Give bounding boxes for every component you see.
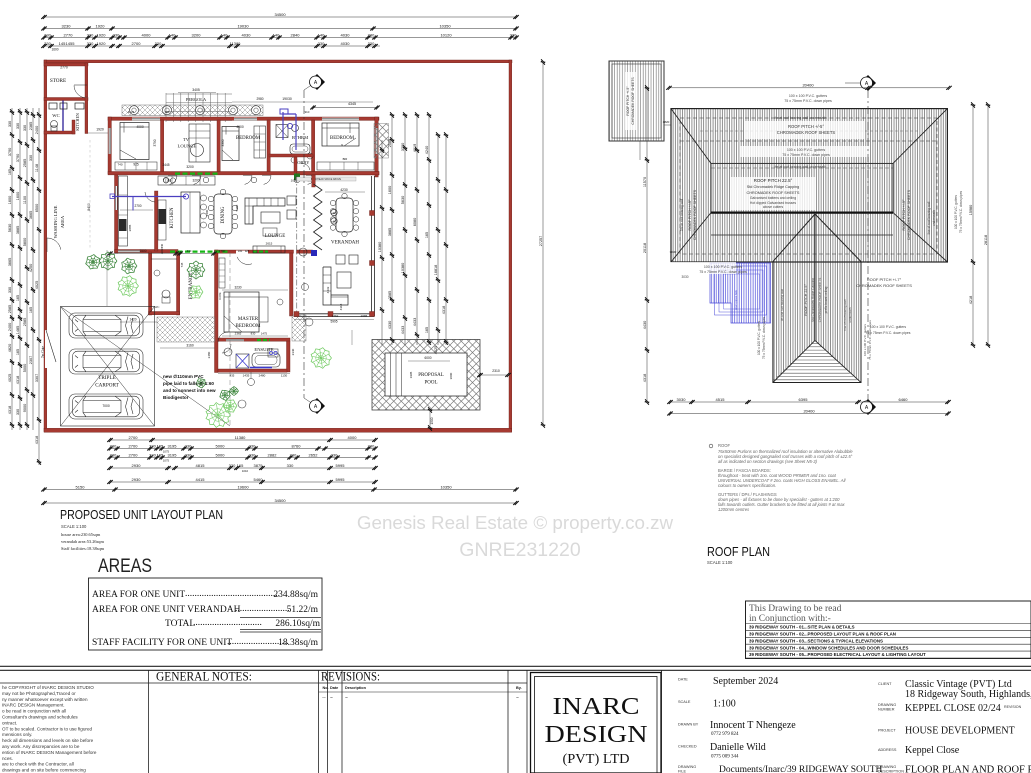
svg-text:4025: 4025 xyxy=(8,374,12,382)
svg-text:100 x 100 P.V.C. gutters: 100 x 100 P.V.C. gutters xyxy=(863,323,867,356)
svg-text:Galvanised battens and ceiling: Galvanised battens and ceiling xyxy=(750,196,796,200)
svg-text:4318: 4318 xyxy=(442,306,446,314)
svg-text:he COPYRIGHT of INARC DESIGN S: he COPYRIGHT of INARC DESIGN STUDIO xyxy=(2,685,94,690)
svg-text:1200mm centres: 1200mm centres xyxy=(718,507,750,512)
svg-text:4025: 4025 xyxy=(35,281,39,289)
svg-text:3885: 3885 xyxy=(16,226,20,234)
svg-text:3790: 3790 xyxy=(153,139,157,146)
svg-text:140: 140 xyxy=(221,32,228,37)
svg-text:1790: 1790 xyxy=(219,249,226,253)
svg-text:CHROMADEK ROOF SHEETS: CHROMADEK ROOF SHEETS xyxy=(856,283,912,288)
svg-text:4030: 4030 xyxy=(341,32,351,37)
svg-text:Std Chromadek Ridge Capping: Std Chromadek Ridge Capping xyxy=(811,278,815,322)
svg-text:19030: 19030 xyxy=(237,23,249,28)
svg-text:CHECKED: CHECKED xyxy=(678,745,697,749)
svg-text:2770: 2770 xyxy=(64,32,74,37)
svg-text:PERGOLA: PERGOLA xyxy=(186,97,207,102)
svg-text:AREAS: AREAS xyxy=(98,556,152,577)
svg-text:330: 330 xyxy=(368,443,375,448)
svg-text:330: 330 xyxy=(44,32,51,37)
svg-text:1920: 1920 xyxy=(96,128,104,132)
svg-text:4240: 4240 xyxy=(425,146,429,154)
svg-text:3875: 3875 xyxy=(254,463,264,468)
svg-text:4318: 4318 xyxy=(8,406,12,414)
svg-text:CARPORT: CARPORT xyxy=(95,383,119,389)
svg-text:Danielle Wild: Danielle Wild xyxy=(710,742,766,753)
svg-text:Innocent T Nhengeze: Innocent T Nhengeze xyxy=(710,720,796,731)
svg-text:75 x 75mm P.V.C. down pipes: 75 x 75mm P.V.C. down pipes xyxy=(868,320,872,360)
svg-text:3195: 3195 xyxy=(168,452,178,457)
svg-text:3000: 3000 xyxy=(449,372,453,379)
svg-text:3030: 3030 xyxy=(677,397,687,402)
svg-text:3200: 3200 xyxy=(186,165,194,169)
svg-text:330: 330 xyxy=(16,409,20,415)
svg-text:330: 330 xyxy=(16,123,20,129)
svg-text:4319: 4319 xyxy=(413,144,417,152)
svg-text:This Drawing to be read: This Drawing to be read xyxy=(749,604,842,614)
svg-text:..............................: ........................................ xyxy=(185,589,280,599)
svg-text:1475: 1475 xyxy=(261,332,268,336)
svg-text:100 x 100 P.V.C. gutters: 100 x 100 P.V.C. gutters xyxy=(757,321,761,355)
svg-text:1485: 1485 xyxy=(16,326,20,334)
svg-text:330: 330 xyxy=(287,463,294,468)
svg-text:4433: 4433 xyxy=(401,326,405,334)
svg-text:330: 330 xyxy=(8,121,12,127)
svg-text:2500: 2500 xyxy=(139,249,146,253)
svg-text:CHROMADEK ROOF SHEETS: CHROMADEK ROOF SHEETS xyxy=(907,189,911,240)
svg-text:6500: 6500 xyxy=(35,204,39,212)
svg-text:INARC DESIGN Management.: INARC DESIGN Management. xyxy=(2,703,65,708)
svg-text:3230: 3230 xyxy=(234,286,241,290)
svg-text:may not be Photographed,Traced: may not be Photographed,Traced or xyxy=(2,691,76,696)
svg-text:19030: 19030 xyxy=(282,97,292,101)
svg-text:10350: 10350 xyxy=(439,23,451,28)
svg-text:1100: 1100 xyxy=(23,196,27,204)
svg-text:39 RIDGEWAY SOUTH - 04...WINDO: 39 RIDGEWAY SOUTH - 04...WINDOW SCHEDULE… xyxy=(749,645,908,650)
svg-text:330: 330 xyxy=(113,32,120,37)
svg-text:KITCHEN: KITCHEN xyxy=(170,207,175,229)
svg-text:2885: 2885 xyxy=(128,224,132,231)
svg-text:0775 009 344: 0775 009 344 xyxy=(711,755,739,760)
svg-text:2700: 2700 xyxy=(129,435,139,440)
svg-text:140: 140 xyxy=(169,32,176,37)
svg-text:underneath: underneath xyxy=(932,210,936,226)
svg-text:140: 140 xyxy=(318,32,325,37)
svg-text:8400: 8400 xyxy=(87,203,91,211)
svg-text:ROOF PITCH +/-5°: ROOF PITCH +/-5° xyxy=(626,86,630,116)
svg-text:2615: 2615 xyxy=(266,242,273,246)
svg-text:4515: 4515 xyxy=(716,397,726,402)
svg-text:75 x 75mm P.V.C. down pipes: 75 x 75mm P.V.C. down pipes xyxy=(699,270,747,274)
svg-text:7m Gate: 7m Gate xyxy=(41,345,45,358)
svg-text:4318: 4318 xyxy=(16,376,20,384)
svg-text:28118: 28118 xyxy=(984,235,988,245)
svg-text:CHROMADEK ROOF SHEETS: CHROMADEK ROOF SHEETS xyxy=(631,77,635,125)
svg-text:51.22/m: 51.22/m xyxy=(287,605,319,615)
svg-text:8760: 8760 xyxy=(292,443,302,448)
svg-text:2585: 2585 xyxy=(23,318,27,326)
svg-text:2585: 2585 xyxy=(23,159,27,167)
svg-text:FILE: FILE xyxy=(678,770,686,773)
svg-text:3390: 3390 xyxy=(221,139,225,146)
svg-text:REVISIONS:: REVISIONS: xyxy=(321,670,380,684)
svg-text:2882: 2882 xyxy=(268,452,278,457)
svg-text:TOTAL: TOTAL xyxy=(165,619,195,629)
svg-text:5995: 5995 xyxy=(336,463,346,468)
svg-text:9000: 9000 xyxy=(23,404,27,412)
svg-text:6395: 6395 xyxy=(799,397,809,402)
svg-text:330: 330 xyxy=(368,32,375,37)
svg-text:4030: 4030 xyxy=(341,41,351,46)
svg-text:DN at roof bearing wall: DN at roof bearing wall xyxy=(680,198,684,231)
svg-text:3230: 3230 xyxy=(62,23,72,28)
svg-text:2700: 2700 xyxy=(132,41,142,46)
svg-text:330: 330 xyxy=(187,249,192,253)
svg-text:house area:230.65sqm: house area:230.65sqm xyxy=(61,532,101,537)
svg-text:.............................: ............................. xyxy=(193,618,262,628)
svg-text:DESIGN: DESIGN xyxy=(545,722,648,748)
svg-text:5460: 5460 xyxy=(254,477,264,482)
svg-text:3665: 3665 xyxy=(8,258,12,266)
svg-text:1920: 1920 xyxy=(97,32,107,37)
svg-text:4318: 4318 xyxy=(339,303,343,310)
svg-text:20400: 20400 xyxy=(802,83,814,88)
svg-text:GNRE231220: GNRE231220 xyxy=(459,539,581,561)
svg-text:1600: 1600 xyxy=(388,186,392,194)
svg-text:4000: 4000 xyxy=(142,32,152,37)
svg-text:11380: 11380 xyxy=(235,435,247,440)
svg-text:..........................: .......................... xyxy=(227,637,289,647)
svg-text:5995: 5995 xyxy=(336,477,346,482)
svg-text:ROOF PITCH 22.5°: ROOF PITCH 22.5° xyxy=(754,178,793,183)
svg-text:PROPOSAL: PROPOSAL xyxy=(418,373,444,378)
svg-text:1435: 1435 xyxy=(243,374,250,378)
svg-text:verandah area:53.26sqm: verandah area:53.26sqm xyxy=(61,539,104,544)
svg-text:3790: 3790 xyxy=(16,154,20,162)
svg-text:Description: Description xyxy=(345,686,367,690)
svg-text:5000: 5000 xyxy=(216,452,226,457)
svg-text:234.88sq/m: 234.88sq/m xyxy=(273,590,318,600)
svg-text:6460: 6460 xyxy=(899,397,909,402)
svg-text:DESCRIPTION: DESCRIPTION xyxy=(878,770,904,773)
svg-text:new ∅110mm PVC: new ∅110mm PVC xyxy=(163,374,204,379)
svg-text:330: 330 xyxy=(229,463,236,468)
svg-text:mensions only.: mensions only. xyxy=(2,732,32,737)
svg-text:CHROMADEK ROOF SHEETS: CHROMADEK ROOF SHEETS xyxy=(747,191,800,195)
svg-text:Date: Date xyxy=(330,686,338,690)
svg-text:2980: 2980 xyxy=(256,97,263,101)
svg-text:165: 165 xyxy=(237,463,244,468)
svg-text:2700: 2700 xyxy=(134,204,141,208)
svg-text:165: 165 xyxy=(425,232,429,238)
svg-text:2480: 2480 xyxy=(259,374,266,378)
svg-text:15980: 15980 xyxy=(969,205,973,216)
svg-text:5150: 5150 xyxy=(76,484,86,489)
svg-text:140: 140 xyxy=(273,32,280,37)
svg-text:MASTER: MASTER xyxy=(238,317,259,322)
svg-text:165: 165 xyxy=(8,169,12,175)
svg-text:330: 330 xyxy=(510,32,517,37)
svg-text:7000: 7000 xyxy=(102,404,110,408)
svg-text:M: M xyxy=(333,220,335,224)
svg-text:Consultant's drawings and sche: Consultant's drawings and schedules xyxy=(2,715,78,720)
svg-text:830: 830 xyxy=(251,332,256,336)
svg-text:DRAWING: DRAWING xyxy=(878,765,896,769)
svg-text:330: 330 xyxy=(87,41,94,46)
svg-text:34500: 34500 xyxy=(274,498,286,503)
svg-text:BULKHEAD SPACE ABOVE: BULKHEAD SPACE ABOVE xyxy=(311,178,342,181)
svg-text:ontract.: ontract. xyxy=(2,720,17,725)
svg-text:in Conjunction with:-: in Conjunction with:- xyxy=(749,614,831,624)
svg-text:1010: 1010 xyxy=(242,469,249,473)
svg-text:1:100: 1:100 xyxy=(713,699,736,710)
svg-text:39 RIDGEWAY SOUTH - 03...SECTI: 39 RIDGEWAY SOUTH - 03...SECTIONS & TYPI… xyxy=(749,638,883,643)
svg-text:330: 330 xyxy=(368,41,375,46)
svg-text:PROJECT: PROJECT xyxy=(878,729,896,733)
svg-text:ROOF PLAN: ROOF PLAN xyxy=(707,544,770,559)
svg-text:AIRER: AIRER xyxy=(160,243,164,254)
svg-text:100 x 100 P.V.C. gutters: 100 x 100 P.V.C. gutters xyxy=(870,325,906,329)
svg-text:STORE: STORE xyxy=(50,78,66,84)
svg-text:3195: 3195 xyxy=(168,443,178,448)
svg-text:330: 330 xyxy=(23,125,27,131)
svg-text:11570: 11570 xyxy=(643,177,647,187)
svg-text:3400: 3400 xyxy=(205,209,209,216)
svg-text:3885: 3885 xyxy=(388,228,392,236)
svg-text:3405: 3405 xyxy=(192,88,200,92)
svg-text:0772 979 824: 0772 979 824 xyxy=(711,732,739,737)
svg-text:GENERAL NOTES:: GENERAL NOTES: xyxy=(156,670,252,684)
svg-text:3200: 3200 xyxy=(192,32,202,37)
svg-text:75 x 75mm P.V.C. down pipes: 75 x 75mm P.V.C. down pipes xyxy=(866,331,911,335)
svg-text:the at roof bearing wall under: the at roof bearing wall underneath xyxy=(774,116,827,120)
svg-text:prefix board ceiling: prefix board ceiling xyxy=(824,286,828,313)
svg-text:18 Ridgeway South, Highlands,: 18 Ridgeway South, Highlands, Harare xyxy=(905,689,1031,700)
svg-text:910: 910 xyxy=(305,110,310,114)
svg-text:165: 165 xyxy=(157,452,164,457)
svg-text:CHROMADEK ROOF SHEETS: CHROMADEK ROOF SHEETS xyxy=(777,130,836,135)
svg-text:.......................: ....................... xyxy=(235,604,290,614)
svg-text:2310: 2310 xyxy=(492,369,500,373)
svg-text:165: 165 xyxy=(16,349,20,355)
svg-text:435: 435 xyxy=(230,374,235,378)
svg-text:drawings and on site before co: drawings and on site before commencing xyxy=(2,768,86,773)
svg-text:4318: 4318 xyxy=(35,436,39,444)
svg-text:STAFF FACILITY FOR ONE UNIT: STAFF FACILITY FOR ONE UNIT xyxy=(92,638,232,648)
svg-text:TRIPLE: TRIPLE xyxy=(98,375,116,381)
svg-text:4345: 4345 xyxy=(348,102,356,106)
svg-text:5800: 5800 xyxy=(23,238,27,246)
svg-text:underneath: underneath xyxy=(848,307,852,323)
svg-text:1130: 1130 xyxy=(281,374,288,378)
svg-text:AREA: AREA xyxy=(60,215,65,228)
svg-text:2445: 2445 xyxy=(162,163,169,167)
svg-text:330: 330 xyxy=(149,443,156,448)
svg-text:CHROMADEK ROOF SHEETS: CHROMADEK ROOF SHEETS xyxy=(693,189,697,240)
svg-text:39 RIDGEWAY SOUTH - 05...PROPO: 39 RIDGEWAY SOUTH - 05...PROPOSED ELECTR… xyxy=(749,652,926,657)
svg-text:3200: 3200 xyxy=(192,179,199,183)
svg-text:1075: 1075 xyxy=(163,459,170,463)
svg-text:all as indicated on section dr: all as indicated on section drawings (se… xyxy=(718,459,818,464)
svg-text:REVISION: REVISION xyxy=(1004,705,1022,709)
svg-text:4025: 4025 xyxy=(434,346,438,354)
svg-text:down pipes falls: down pipes falls xyxy=(734,289,738,310)
svg-text:SCALE 1:100: SCALE 1:100 xyxy=(707,560,733,565)
svg-text:4433: 4433 xyxy=(413,318,417,326)
svg-text:INARC: INARC xyxy=(553,694,640,720)
svg-text:pipe laid to falls @ 1:60: pipe laid to falls @ 1:60 xyxy=(163,381,214,386)
svg-text:3160: 3160 xyxy=(186,344,194,348)
svg-text:BIR: BIR xyxy=(343,157,348,161)
svg-text:4318: 4318 xyxy=(643,374,647,382)
svg-text:2652: 2652 xyxy=(309,452,319,457)
svg-text:4820: 4820 xyxy=(8,344,12,352)
svg-text:4218: 4218 xyxy=(969,296,973,304)
svg-text:AREA FOR ONE UNIT: AREA FOR ONE UNIT xyxy=(92,590,185,600)
svg-text:DRAWN BY: DRAWN BY xyxy=(678,723,699,727)
svg-text:By.: By. xyxy=(516,686,522,690)
svg-text:Documents/Inarc/39 RIDGEWAY SO: Documents/Inarc/39 RIDGEWAY SOUTH xyxy=(719,765,883,773)
svg-text:20400: 20400 xyxy=(803,408,815,413)
svg-text:the at roof bearing wall under: the at roof bearing wall underneath xyxy=(774,165,827,169)
svg-text:WASHING LINE: WASHING LINE xyxy=(53,205,58,238)
svg-text:1600: 1600 xyxy=(16,192,20,200)
svg-text:1920: 1920 xyxy=(97,41,107,46)
svg-text:330: 330 xyxy=(155,41,162,46)
svg-text:100 x 100 P.V.C. gutters: 100 x 100 P.V.C. gutters xyxy=(787,148,826,152)
svg-text:are to check with the Contract: are to check with the Contractor, all xyxy=(2,762,74,767)
svg-text:OT to be scaled. Contractor is: OT to be scaled. Contractor is to use fi… xyxy=(2,726,92,731)
svg-text:DINING: DINING xyxy=(221,206,226,224)
svg-text:2585: 2585 xyxy=(388,291,392,299)
svg-text:3790: 3790 xyxy=(401,143,405,151)
svg-text:HOUSE DEVELOPMENT: HOUSE DEVELOPMENT xyxy=(905,726,1015,737)
svg-text:KITCHEN: KITCHEN xyxy=(75,113,80,131)
svg-text:4000: 4000 xyxy=(236,125,244,129)
svg-text:1600: 1600 xyxy=(8,196,12,204)
svg-text:2585: 2585 xyxy=(388,139,392,147)
svg-text:1600: 1600 xyxy=(51,48,58,52)
svg-text:line of roof bearing wall: line of roof bearing wall xyxy=(927,201,931,234)
svg-text:FLOOR PLAN AND ROOF PLAN: FLOOR PLAN AND ROOF PLAN xyxy=(905,765,1031,773)
svg-text:SCALE 1:100: SCALE 1:100 xyxy=(61,524,87,529)
svg-text:1148: 1148 xyxy=(35,164,39,172)
svg-text:6000: 6000 xyxy=(424,356,431,360)
svg-text:and to connect into new: and to connect into new xyxy=(163,388,216,393)
svg-text:2400: 2400 xyxy=(35,126,39,134)
svg-text:Std Chromadek Ridge Capping: Std Chromadek Ridge Capping xyxy=(747,185,800,189)
svg-text:nces.: nces. xyxy=(2,756,13,761)
svg-text:75 x 75mm P.V.C. down pipes: 75 x 75mm P.V.C. down pipes xyxy=(959,191,963,234)
svg-text:2307: 2307 xyxy=(29,356,33,364)
svg-text:3030: 3030 xyxy=(670,250,677,254)
svg-text:Staff facilities:18.38sqm: Staff facilities:18.38sqm xyxy=(61,546,105,551)
svg-text:colours to owners specificatio: colours to owners specification. xyxy=(718,483,776,488)
svg-text:75 x 75mm P.V.C. down pipes: 75 x 75mm P.V.C. down pipes xyxy=(762,317,766,360)
svg-text:KEPPEL CLOSE 02/24: KEPPEL CLOSE 02/24 xyxy=(905,703,1001,714)
svg-text:BEDROOM: BEDROOM xyxy=(235,324,261,329)
svg-text:1455: 1455 xyxy=(66,41,76,46)
svg-text:1820: 1820 xyxy=(663,120,670,124)
svg-text:740: 740 xyxy=(117,163,122,167)
svg-text:100 x 100 P.V.C. gutters: 100 x 100 P.V.C. gutters xyxy=(789,94,828,98)
svg-text:330: 330 xyxy=(185,452,192,457)
svg-text:dn and roof bearing wall: dn and roof bearing wall xyxy=(780,289,784,321)
svg-text:PROPOSED UNIT LAYOUT PLAN: PROPOSED UNIT LAYOUT PLAN xyxy=(60,507,223,522)
svg-text:POOL: POOL xyxy=(424,381,437,386)
svg-text:330: 330 xyxy=(8,287,12,293)
svg-text:10120: 10120 xyxy=(440,32,452,37)
svg-text:2480: 2480 xyxy=(207,351,211,358)
svg-text:(PVT) LTD: (PVT) LTD xyxy=(563,752,630,767)
svg-text:39 RIDGEWAY SOUTH - 01...SITE: 39 RIDGEWAY SOUTH - 01...SITE PLAN & DET… xyxy=(749,625,855,630)
svg-text:5630: 5630 xyxy=(8,224,12,232)
svg-text:330: 330 xyxy=(149,452,156,457)
svg-text:2930: 2930 xyxy=(132,463,142,468)
svg-text:10380: 10380 xyxy=(378,242,382,253)
svg-text:September 2024: September 2024 xyxy=(713,676,778,687)
svg-text:Genesis Real Estate © property: Genesis Real Estate © property.co.zw xyxy=(357,512,674,533)
svg-text:10350: 10350 xyxy=(440,484,452,489)
svg-text:9: 9 xyxy=(341,143,343,147)
svg-text:2700: 2700 xyxy=(129,452,139,457)
svg-text:2086: 2086 xyxy=(361,314,368,318)
svg-text:5000: 5000 xyxy=(23,364,27,372)
svg-text:CHROMADEK ROOF SHEETS: CHROMADEK ROOF SHEETS xyxy=(818,278,822,322)
svg-text:4000: 4000 xyxy=(348,435,358,440)
svg-text:3030: 3030 xyxy=(681,275,688,279)
svg-text:286.10sq/m: 286.10sq/m xyxy=(275,619,320,629)
svg-text:330: 330 xyxy=(185,443,192,448)
svg-text:NUMBER: NUMBER xyxy=(878,708,895,712)
svg-text:ROOF: ROOF xyxy=(718,443,731,448)
svg-text:2400: 2400 xyxy=(8,323,12,331)
svg-text:ny manner whatsoever except wi: ny manner whatsoever except with written xyxy=(2,697,88,702)
svg-text:2770: 2770 xyxy=(60,66,68,70)
svg-text:4815: 4815 xyxy=(196,463,206,468)
svg-text:75 x 75mm P.V.C. down pipes: 75 x 75mm P.V.C. down pipes xyxy=(782,153,830,157)
svg-text:330: 330 xyxy=(249,452,256,457)
svg-text:330: 330 xyxy=(318,41,325,46)
svg-text:330: 330 xyxy=(331,452,338,457)
svg-text:heck all dimensions and levels: heck all dimensions and levels on site b… xyxy=(2,738,94,743)
svg-text:ention of INARC DESIGN Managem: ention of INARC DESIGN Management before xyxy=(2,750,97,755)
svg-text:2385: 2385 xyxy=(29,122,33,130)
svg-text:4433: 4433 xyxy=(326,286,330,293)
svg-text:4230: 4230 xyxy=(340,188,348,192)
svg-text:5995: 5995 xyxy=(330,320,337,324)
svg-text:ROOF PITCH +/-5°: ROOF PITCH +/-5° xyxy=(688,199,692,230)
svg-text:Keppel Close: Keppel Close xyxy=(905,745,960,756)
svg-text:4415: 4415 xyxy=(196,477,206,482)
svg-text:DATE: DATE xyxy=(678,678,688,682)
svg-text:o be read in conjunction with: o be read in conjunction with all xyxy=(2,709,66,714)
svg-text:VERANDAH: VERANDAH xyxy=(331,241,359,246)
svg-text:LOUNGE: LOUNGE xyxy=(265,234,286,239)
svg-text:BEDROOM: BEDROOM xyxy=(330,136,355,141)
svg-text:100 x 100 P.V.C. gutters: 100 x 100 P.V.C. gutters xyxy=(704,265,743,269)
svg-text:SCALE: SCALE xyxy=(678,700,691,704)
svg-text:5630: 5630 xyxy=(401,196,405,204)
svg-text:line of roof bearing wall: line of roof bearing wall xyxy=(843,299,847,330)
svg-text:11380: 11380 xyxy=(230,41,242,46)
svg-text:3790: 3790 xyxy=(8,148,12,156)
svg-text:4330: 4330 xyxy=(388,321,392,329)
svg-text:ROOF PITCH +/-5°: ROOF PITCH +/-5° xyxy=(902,199,906,230)
svg-text:27257: 27257 xyxy=(539,236,543,247)
svg-text:2585: 2585 xyxy=(8,305,12,313)
svg-text:WC: WC xyxy=(154,305,159,309)
